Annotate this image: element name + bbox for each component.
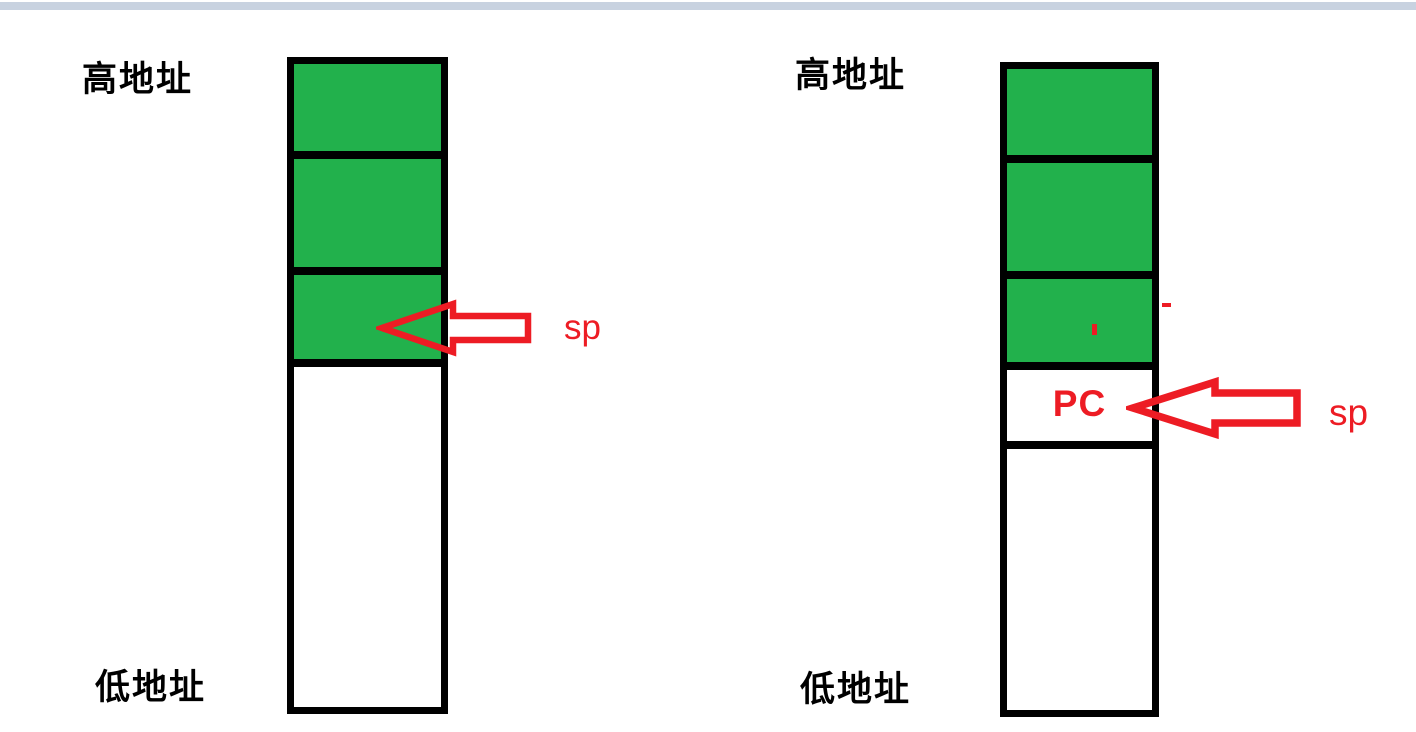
left-high-address-label: 高地址 (82, 62, 193, 97)
sp-arrow-left-icon (376, 297, 534, 359)
left-stack (287, 57, 448, 714)
sp-arrow-right-icon (1126, 374, 1302, 442)
right-high-address-label: 高地址 (795, 58, 906, 93)
stack-diagram-canvas: 高地址 sp 低地址 高地址 PC sp 低地址 (0, 0, 1416, 732)
right-stack-cell-green-3 (1007, 279, 1152, 370)
right-stack-cell-green-2 (1007, 163, 1152, 279)
right-low-address-label: 低地址 (800, 672, 911, 707)
stray-red-mark-dash (1162, 303, 1171, 307)
left-sp-label: sp (564, 310, 601, 345)
left-stack-cell-green-1 (294, 64, 441, 159)
right-sp-label: sp (1329, 394, 1368, 431)
right-stack-cell-green-1 (1007, 69, 1152, 163)
left-stack-cell-green-2 (294, 159, 441, 275)
left-low-address-label: 低地址 (95, 670, 206, 705)
window-top-strip (0, 2, 1416, 10)
stray-red-mark-tick (1092, 324, 1097, 335)
